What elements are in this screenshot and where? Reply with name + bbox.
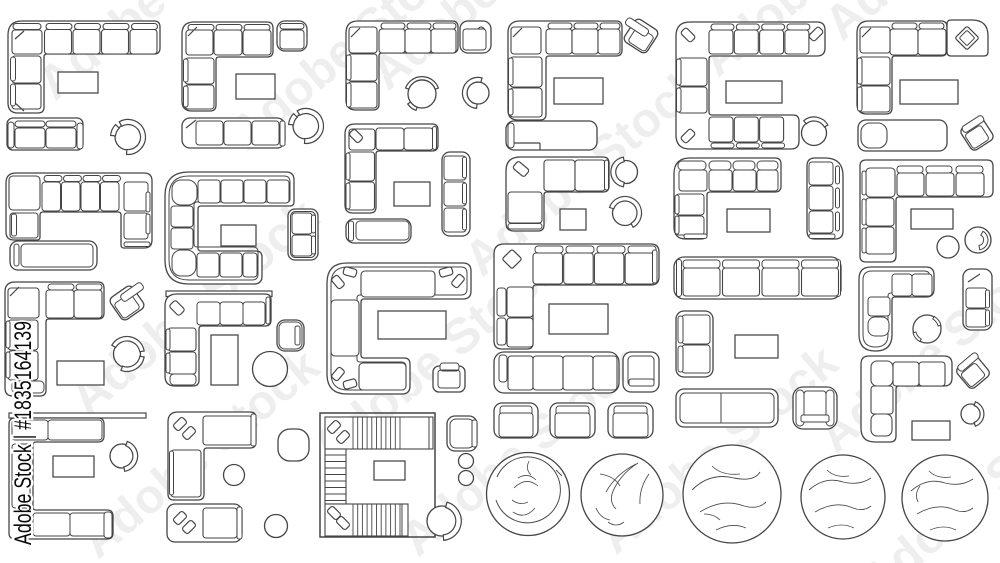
svg-text:Adobe Stock | #1835164139: Adobe Stock | #1835164139 (10, 321, 37, 545)
